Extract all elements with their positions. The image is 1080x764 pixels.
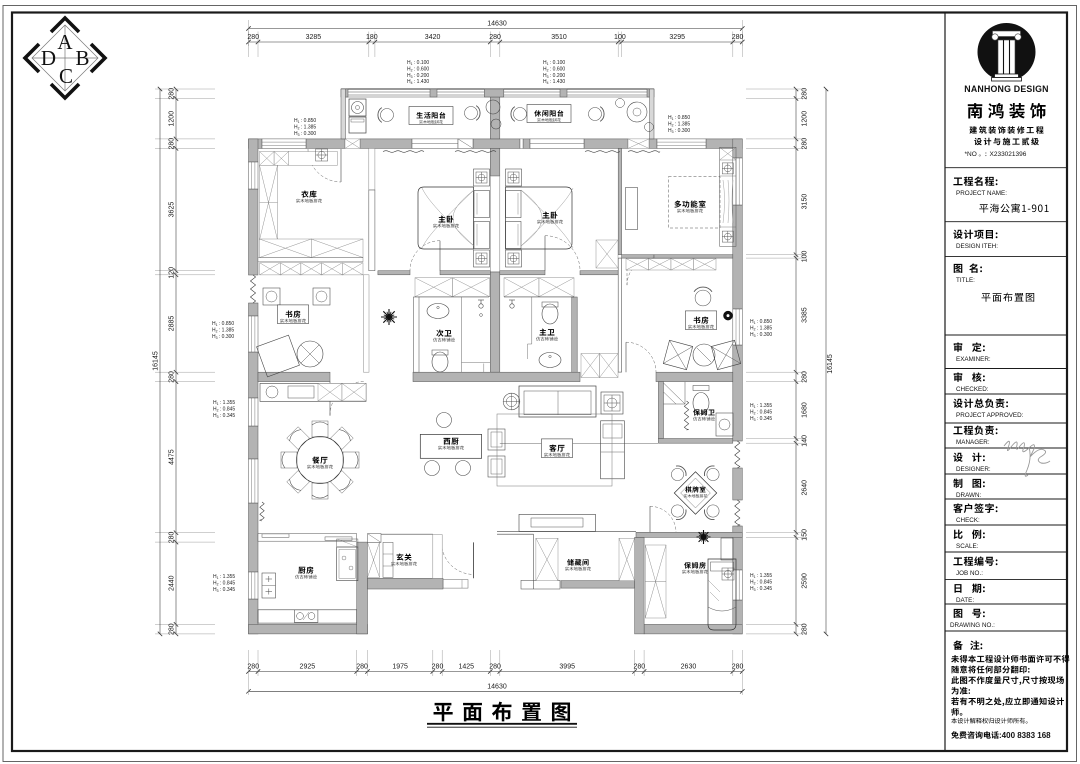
svg-text:3625: 3625	[169, 202, 176, 218]
svg-text:H2 : 0.600: H2 : 0.600	[407, 66, 429, 72]
svg-text:280: 280	[247, 664, 259, 671]
svg-text:3295: 3295	[669, 34, 685, 41]
svg-text:2590: 2590	[802, 573, 809, 589]
svg-text:H3 : 0.345: H3 : 0.345	[750, 416, 772, 422]
svg-text:100: 100	[802, 250, 809, 262]
svg-text:H3 : 0.300: H3 : 0.300	[212, 334, 234, 340]
svg-text:150: 150	[802, 529, 809, 541]
svg-text:180: 180	[366, 34, 378, 41]
svg-text:H2 : 1.385: H2 : 1.385	[212, 327, 234, 333]
svg-text:2440: 2440	[169, 575, 176, 591]
svg-text:3420: 3420	[425, 34, 441, 41]
svg-text:DESIGN ITEH:: DESIGN ITEH:	[956, 243, 998, 250]
svg-text:280: 280	[169, 138, 176, 150]
svg-text:MANAGER:: MANAGER:	[956, 439, 990, 446]
svg-text:B: B	[75, 46, 89, 70]
svg-text:H1 : 0.850: H1 : 0.850	[212, 321, 234, 327]
svg-text:H2 : 0.845: H2 : 0.845	[213, 406, 235, 412]
svg-text:JOB NO.:: JOB NO.:	[956, 570, 983, 577]
svg-text:H3 : 0.300: H3 : 0.300	[294, 131, 316, 137]
svg-text:H3 : 0.345: H3 : 0.345	[213, 413, 235, 419]
svg-text:TITLE:: TITLE:	[956, 277, 975, 284]
svg-text:H1 : 1.355: H1 : 1.355	[213, 400, 235, 406]
svg-text:DESIGNER:: DESIGNER:	[956, 466, 991, 473]
svg-text:PROJECT APPROVED:: PROJECT APPROVED:	[956, 412, 1024, 419]
svg-text:H1 : 1.355: H1 : 1.355	[213, 574, 235, 580]
svg-text:14630: 14630	[487, 684, 507, 691]
svg-text:DRAWN:: DRAWN:	[956, 492, 982, 499]
svg-text:H2 : 1.385: H2 : 1.385	[668, 121, 690, 127]
svg-text:CHECK:: CHECK:	[956, 517, 980, 524]
svg-text:2640: 2640	[802, 480, 809, 496]
svg-text:CHECKED:: CHECKED:	[956, 386, 989, 393]
svg-text:3510: 3510	[551, 34, 567, 41]
svg-text:1200: 1200	[802, 111, 809, 127]
svg-text:280: 280	[802, 623, 809, 635]
svg-text:H2 : 0.845: H2 : 0.845	[213, 580, 235, 586]
svg-text:280: 280	[802, 88, 809, 100]
svg-text:1425: 1425	[458, 664, 474, 671]
svg-text:H1 : 0.850: H1 : 0.850	[668, 115, 690, 121]
svg-text:280: 280	[489, 34, 501, 41]
svg-text:4475: 4475	[169, 449, 176, 465]
svg-text:A: A	[57, 30, 73, 54]
svg-text:EXAMINER:: EXAMINER:	[956, 356, 991, 363]
svg-text:280: 280	[169, 531, 176, 543]
svg-text:100: 100	[614, 34, 626, 41]
svg-text:280: 280	[356, 664, 368, 671]
svg-text:PROJECT NAME:: PROJECT NAME:	[956, 190, 1007, 197]
svg-text:280: 280	[802, 138, 809, 150]
svg-text:1200: 1200	[169, 111, 176, 127]
svg-text:H3 : 0.345: H3 : 0.345	[750, 586, 772, 592]
svg-text:DATE:: DATE:	[956, 597, 974, 604]
svg-text:H2 : 0.600: H2 : 0.600	[543, 66, 565, 72]
svg-text:H3 : 0.200: H3 : 0.200	[543, 73, 565, 79]
svg-text:D: D	[41, 46, 56, 70]
svg-text:H3 : 0.200: H3 : 0.200	[407, 73, 429, 79]
svg-text:280: 280	[247, 34, 259, 41]
svg-text:16145: 16145	[153, 351, 160, 371]
svg-text:280: 280	[802, 371, 809, 383]
svg-text:H2 : 0.845: H2 : 0.845	[750, 579, 772, 585]
svg-text:280: 280	[169, 88, 176, 100]
svg-text:*NO: *NO	[965, 151, 977, 158]
svg-text:2925: 2925	[300, 664, 316, 671]
svg-text:2885: 2885	[169, 316, 176, 332]
svg-text:SCALE:: SCALE:	[956, 543, 979, 550]
svg-text:280: 280	[169, 623, 176, 635]
svg-text:H1 : 0.850: H1 : 0.850	[294, 118, 316, 124]
svg-text:H2 : 1.385: H2 : 1.385	[294, 124, 316, 130]
svg-text:3285: 3285	[306, 34, 322, 41]
svg-text:H4 : 1.430: H4 : 1.430	[543, 79, 565, 85]
svg-text:H1 : 0.100: H1 : 0.100	[543, 60, 565, 66]
svg-text:14630: 14630	[487, 21, 507, 28]
svg-text:H1 : 1.355: H1 : 1.355	[750, 403, 772, 409]
svg-text:H3 : 0.300: H3 : 0.300	[750, 332, 772, 338]
svg-text:H1 : 1.355: H1 : 1.355	[750, 573, 772, 579]
svg-text:H4 : 1.430: H4 : 1.430	[407, 79, 429, 85]
svg-text:H2 : 0.845: H2 : 0.845	[750, 409, 772, 415]
svg-text:3385: 3385	[802, 307, 809, 323]
svg-text:H1 : 0.100: H1 : 0.100	[407, 60, 429, 66]
svg-text:280: 280	[634, 664, 646, 671]
svg-text:DRAWING NO.:: DRAWING NO.:	[950, 622, 995, 629]
svg-text:140: 140	[802, 435, 809, 447]
svg-text:H2 : 1.385: H2 : 1.385	[750, 325, 772, 331]
svg-text:X233021396: X233021396	[990, 151, 1027, 158]
svg-text:NANHONG DESIGN: NANHONG DESIGN	[964, 84, 1048, 94]
svg-text:H3 : 0.300: H3 : 0.300	[668, 128, 690, 134]
svg-text:120: 120	[169, 267, 176, 279]
svg-text:280: 280	[169, 371, 176, 383]
svg-text:280: 280	[732, 664, 744, 671]
svg-text:3150: 3150	[802, 194, 809, 210]
svg-text:2630: 2630	[681, 664, 697, 671]
svg-text:1975: 1975	[392, 664, 408, 671]
svg-text:1680: 1680	[802, 402, 809, 418]
svg-text:280: 280	[489, 664, 501, 671]
svg-text:C: C	[59, 64, 73, 88]
svg-text:3995: 3995	[559, 664, 575, 671]
svg-text:16145: 16145	[827, 354, 834, 374]
svg-text:H3 : 0.345: H3 : 0.345	[213, 587, 235, 593]
svg-text::400 8383 168: :400 8383 168	[999, 731, 1051, 740]
svg-text:280: 280	[732, 34, 744, 41]
svg-text:H1 : 0.850: H1 : 0.850	[750, 319, 772, 325]
svg-text:280: 280	[432, 664, 444, 671]
